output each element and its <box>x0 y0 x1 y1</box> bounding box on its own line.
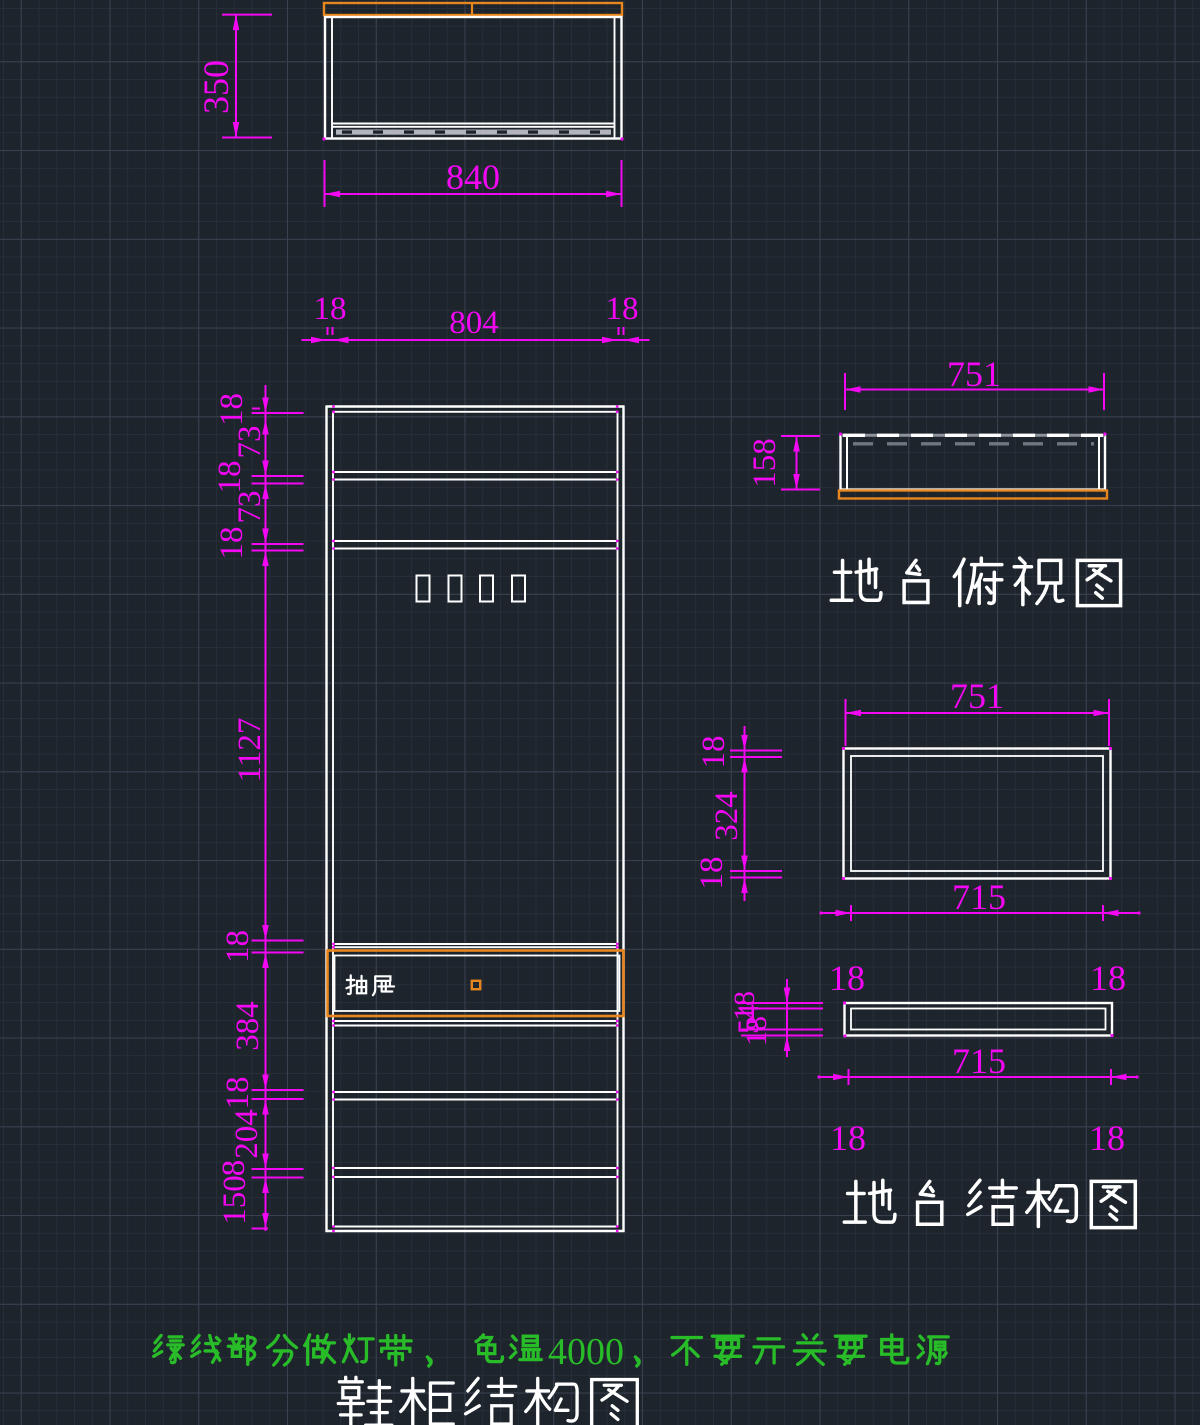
svg-text:804: 804 <box>449 305 499 341</box>
svg-text:4000: 4000 <box>548 1331 624 1373</box>
svg-text:18: 18 <box>606 291 639 327</box>
svg-text:150: 150 <box>217 1175 253 1225</box>
svg-text:18: 18 <box>1089 1118 1125 1158</box>
svg-text:73: 73 <box>232 426 268 459</box>
svg-text:18: 18 <box>214 527 250 560</box>
svg-text:751: 751 <box>950 676 1004 716</box>
svg-text:204: 204 <box>229 1109 265 1159</box>
svg-text:18: 18 <box>830 1118 866 1158</box>
svg-text:350: 350 <box>196 60 236 114</box>
svg-text:18: 18 <box>220 930 256 963</box>
svg-text:1127: 1127 <box>232 718 268 783</box>
svg-text:18: 18 <box>314 291 347 327</box>
svg-text:18: 18 <box>212 461 248 494</box>
svg-text:715: 715 <box>952 877 1006 917</box>
svg-text:18: 18 <box>220 1077 256 1110</box>
svg-text:18: 18 <box>1090 958 1126 998</box>
svg-text:384: 384 <box>230 1001 266 1051</box>
svg-text:73: 73 <box>232 491 268 524</box>
svg-text:158: 158 <box>747 438 783 488</box>
svg-text:840: 840 <box>446 157 500 197</box>
svg-text:18: 18 <box>696 736 732 769</box>
svg-text:18: 18 <box>694 857 730 890</box>
svg-text:324: 324 <box>709 791 745 841</box>
svg-text:715: 715 <box>952 1041 1006 1081</box>
svg-text:18: 18 <box>829 958 865 998</box>
svg-text:8: 8 <box>216 1160 252 1177</box>
svg-text:18: 18 <box>740 1016 773 1046</box>
svg-text:18: 18 <box>214 393 250 426</box>
svg-text:751: 751 <box>947 354 1001 394</box>
